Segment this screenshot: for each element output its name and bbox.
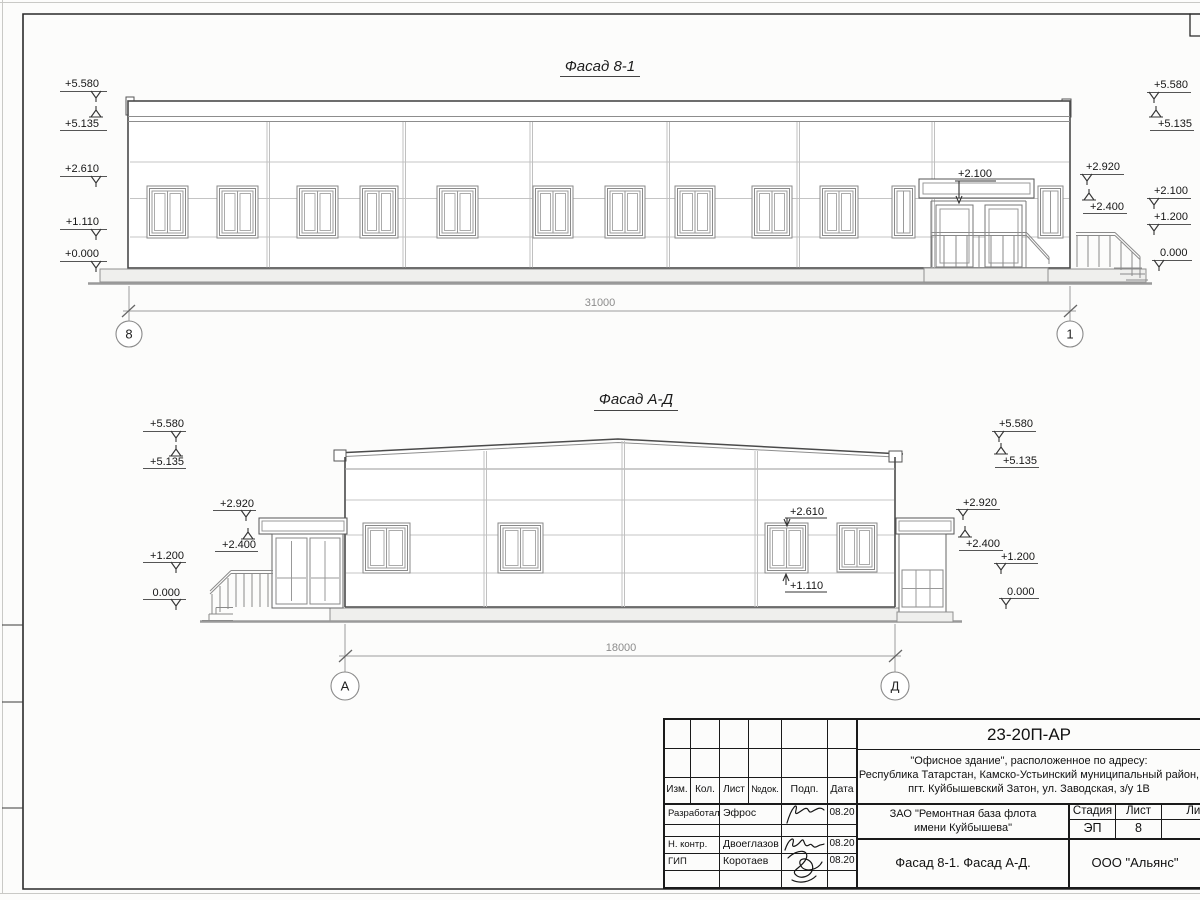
signature xyxy=(780,846,827,888)
level-arrow-down-icon xyxy=(91,91,101,102)
window xyxy=(752,186,792,238)
elevation-label: 0.000 xyxy=(1160,247,1188,259)
level-arrow-down-icon xyxy=(91,176,101,187)
elevation-mark: 0.000 xyxy=(1152,247,1192,271)
level-arrow-down-icon xyxy=(171,599,181,610)
window xyxy=(837,523,877,572)
level-arrow-down-icon xyxy=(1154,260,1164,271)
level-arrow-down-icon xyxy=(241,510,251,521)
window xyxy=(363,523,410,573)
canopy xyxy=(259,518,347,534)
elevation-mark: +1.200 xyxy=(1147,211,1191,235)
elevation-label: +2.100 xyxy=(1154,185,1188,197)
axis-label: А xyxy=(341,679,350,694)
elevation-mark: +2.400 xyxy=(958,526,1003,551)
level-arrow-down-icon xyxy=(1149,198,1159,209)
level-arrow-up-icon xyxy=(1082,189,1096,200)
elevation-label: +1.110 xyxy=(66,216,99,228)
sheet-label: Лист xyxy=(1116,804,1161,819)
elevation-label: +2.920 xyxy=(963,497,997,509)
elevation-mark: +1.110 xyxy=(60,216,107,240)
row-date: 08.20 xyxy=(828,803,856,824)
level-arrow-down-icon xyxy=(171,562,181,573)
window xyxy=(605,186,645,238)
elevation-mark: +1.200 xyxy=(994,551,1038,574)
dimension-text: 18000 xyxy=(606,642,637,654)
slab xyxy=(897,612,953,622)
window xyxy=(820,186,858,238)
facade1-title: Фасад 8-1 xyxy=(565,58,635,75)
elevation-label: +2.400 xyxy=(222,539,256,551)
level-arrow-down-icon xyxy=(1001,598,1011,609)
base-slab xyxy=(330,608,905,621)
elevation-mark: 0.000 xyxy=(999,586,1039,609)
sheets-label: Листов xyxy=(1162,804,1200,819)
level-arrow-down-icon xyxy=(1149,224,1159,235)
axis-label: Д xyxy=(891,679,900,694)
elevation-mark: +0.000 xyxy=(60,248,107,272)
window xyxy=(360,186,398,238)
elevation-mark: +5.580 xyxy=(60,78,107,102)
drawing-sheet: { "sheet": { "facade1": { "title": "Фаса… xyxy=(0,0,1200,900)
elevation-mark: +5.580 xyxy=(143,418,186,442)
elevation-mark: +2.920 xyxy=(1080,161,1124,185)
elevation-label: +5.580 xyxy=(1154,79,1188,91)
elevation-label: +2.400 xyxy=(966,538,1000,550)
row-role: Н. контр. xyxy=(665,836,719,853)
level-arrow-up-icon xyxy=(241,528,255,539)
level-arrow-down-icon xyxy=(996,563,1006,574)
elevation-mark: +5.135 xyxy=(994,443,1039,468)
elevation-label: +2.920 xyxy=(1086,161,1120,173)
level-arrow-up-icon xyxy=(994,443,1008,454)
elevation-label: +1.200 xyxy=(150,550,184,562)
row-name: Эфрос xyxy=(720,803,781,824)
sheet-title: Фасад 8-1. Фасад А-Д. xyxy=(858,840,1068,887)
elevation-mark: +5.580 xyxy=(992,418,1036,442)
level-arrow-down-icon xyxy=(958,509,968,520)
axis-label: 8 xyxy=(125,327,132,342)
elevation-mark: +1.200 xyxy=(143,550,186,573)
window xyxy=(533,186,573,238)
level-arrow-up-icon xyxy=(958,526,972,537)
elevation-label: +2.400 xyxy=(1090,201,1124,213)
elevation-label: +5.580 xyxy=(150,418,184,430)
row-date: 08.20 xyxy=(828,836,856,853)
entrance-canopy xyxy=(919,179,1034,198)
level-arrow-down-icon xyxy=(994,431,1004,442)
address-line: пгт. Куйбышевский Затон, ул. Заводская, … xyxy=(908,783,1150,797)
row-role: Разработал xyxy=(665,803,719,824)
stage-label: Стадия xyxy=(1070,804,1115,819)
col-data: Дата xyxy=(828,777,856,803)
elevation-mark: +5.135 xyxy=(60,106,107,131)
vestibule-body xyxy=(899,534,946,612)
facade-8-1-dimension: 31000 8 1 xyxy=(116,286,1083,347)
window xyxy=(437,186,478,238)
window xyxy=(217,186,258,238)
level-arrow-up-icon xyxy=(1149,106,1163,117)
address-line: "Офисное здание", расположенное по адрес… xyxy=(910,755,1147,769)
sheet-value: 8 xyxy=(1116,819,1161,838)
porch-railing xyxy=(202,571,273,621)
stage-value: ЭП xyxy=(1070,819,1115,838)
binding-strip xyxy=(3,625,24,808)
elevation-label: +1.200 xyxy=(1154,211,1188,223)
elevation-mark: 0.000 xyxy=(143,587,186,610)
level-arrow-down-icon xyxy=(1149,92,1159,103)
facade2-title: Фасад А-Д xyxy=(599,391,674,408)
elevation-mark: +2.400 xyxy=(1082,189,1127,214)
address-line: Республика Татарстан, Камско-Устьинский … xyxy=(859,769,1199,783)
elevation-mark: +2.400 xyxy=(215,528,258,552)
facade-a-d-view: Фасад А-Д xyxy=(200,391,962,622)
col-ndok: №док. xyxy=(749,777,781,803)
elevation-label: +5.580 xyxy=(65,78,99,90)
elevation-label: +5.135 xyxy=(65,118,99,130)
window xyxy=(675,186,715,238)
window xyxy=(297,186,338,238)
client-line: имени Куйбышева" xyxy=(914,822,1012,836)
elevation-label: +2.610 xyxy=(65,163,99,175)
elevation-label: +5.135 xyxy=(150,456,184,468)
vestibule-right xyxy=(896,518,954,622)
col-kol: Кол. xyxy=(691,777,719,803)
window xyxy=(147,186,188,238)
dimension-text: 31000 xyxy=(585,297,616,309)
sheets-value xyxy=(1162,819,1200,838)
row-name: Двоеглазов xyxy=(720,836,781,853)
elevation-label: +5.135 xyxy=(1158,118,1192,130)
level-arrow-down-icon xyxy=(91,229,101,240)
elevation-mark: +2.920 xyxy=(956,497,1000,520)
signature xyxy=(783,800,827,826)
elevation-label: 0.000 xyxy=(152,587,180,599)
object-address: "Офисное здание", расположенное по адрес… xyxy=(858,751,1200,801)
elevation-label: +5.580 xyxy=(999,418,1033,430)
row-role: ГИП xyxy=(665,853,719,870)
elevation-mark: +5.135 xyxy=(1149,106,1194,131)
elevation-label: +2.610 xyxy=(790,506,824,518)
canopy xyxy=(896,518,954,534)
client-line: ЗАО "Ремонтная база флота xyxy=(890,808,1037,822)
elevation-mark: +2.100 xyxy=(1147,185,1191,209)
row-date: 08.20 xyxy=(828,853,856,870)
level-arrow-up-icon xyxy=(89,106,103,117)
client: ЗАО "Ремонтная база флота имени Куйбышев… xyxy=(858,805,1068,838)
doc-number: 23-20П-АР xyxy=(858,720,1200,749)
col-list: Лист xyxy=(720,777,748,803)
window xyxy=(892,186,915,238)
porch-slab xyxy=(924,268,1048,282)
elevation-label: +1.110 xyxy=(790,580,823,592)
elevation-label: +5.135 xyxy=(1003,455,1037,467)
elevation-mark: +2.920 xyxy=(213,498,256,521)
elevation-label: +1.200 xyxy=(1001,551,1035,563)
facade-8-1-view: Фасад 8-1 xyxy=(88,58,1152,284)
company: ООО "Альянс" xyxy=(1070,840,1200,887)
level-arrow-up-icon xyxy=(169,445,183,456)
facade-a-d-dimension: 18000 А Д xyxy=(331,624,909,700)
col-izm: Изм. xyxy=(664,777,690,803)
title-block: Изм. Кол. Лист №док. Подп. Дата Разработ… xyxy=(663,718,1200,889)
elevation-mark: +5.135 xyxy=(143,445,186,469)
level-arrow-down-icon xyxy=(1082,174,1092,185)
level-arrow-down-icon xyxy=(171,431,181,442)
format-box xyxy=(1190,14,1200,36)
elevation-label: +0.000 xyxy=(65,248,99,260)
elevation-label: +2.100 xyxy=(958,168,992,180)
window xyxy=(765,523,808,573)
elevation-label: +2.920 xyxy=(220,498,254,510)
axis-label: 1 xyxy=(1066,327,1073,342)
row-name: Коротаев xyxy=(720,853,781,870)
elevation-mark: +5.580 xyxy=(1147,79,1191,103)
elevation-mark: +2.610 xyxy=(60,163,107,187)
window xyxy=(498,523,543,573)
window xyxy=(1038,186,1063,238)
vestibule-left xyxy=(202,518,347,621)
elevation-label: 0.000 xyxy=(1007,586,1035,598)
